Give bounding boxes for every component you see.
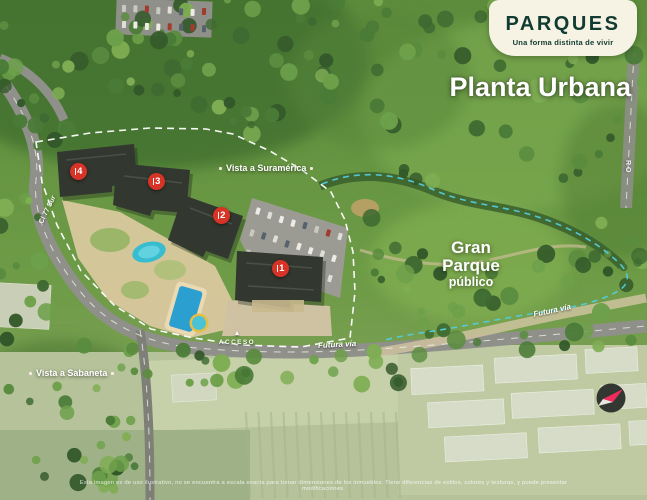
marker-bar — [277, 265, 278, 272]
tower-number: 3 — [155, 177, 160, 187]
tower-number: 2 — [220, 211, 225, 221]
footer-disclaimer: Esta imagen es de uso ilustrativo, no se… — [0, 480, 647, 492]
gran-parque-line2: Parque — [424, 257, 518, 275]
label-vista-suramerica: Vista a Suramérica — [219, 163, 313, 173]
dot-icon — [219, 167, 222, 170]
label-gran-parque: Gran Parque público — [424, 239, 518, 289]
label-vista-sabaneta: Vista a Sabaneta — [29, 368, 114, 378]
acceso-text: ACCESO — [219, 339, 255, 346]
tower-number: 1 — [279, 264, 284, 274]
tower-marker-2: 2 — [213, 207, 230, 224]
north-arrow-icon — [592, 379, 630, 417]
gran-parque-line1: Gran — [424, 239, 518, 257]
brand-tagline: Una forma distinta de vivir — [513, 38, 614, 47]
dot-icon — [29, 372, 32, 375]
vista-sabaneta-text: Vista a Sabaneta — [36, 368, 107, 378]
tower-marker-1: 1 — [272, 260, 289, 277]
label-acceso: ▲ ACCESO — [213, 330, 261, 346]
gran-parque-line3: público — [424, 276, 518, 289]
tower-marker-3: 3 — [148, 173, 165, 190]
marker-bar — [218, 212, 219, 219]
tower-number: 4 — [77, 167, 82, 177]
logo-badge: PARQUES Una forma distinta de vivir — [489, 0, 637, 56]
brand-name: PARQUES — [506, 14, 621, 34]
road-label-right: RO — [624, 160, 631, 175]
marker-bar — [75, 168, 76, 175]
marker-bar — [153, 178, 154, 185]
dot-icon — [111, 372, 114, 375]
page-title: Planta Urbana — [449, 72, 631, 103]
access-arrow-icon: ▲ — [234, 330, 241, 337]
dot-icon — [310, 167, 313, 170]
site-plan-render: PARQUES Una forma distinta de vivir Plan… — [0, 0, 647, 500]
vista-suramerica-text: Vista a Suramérica — [226, 163, 306, 173]
tower-marker-4: 4 — [70, 163, 87, 180]
